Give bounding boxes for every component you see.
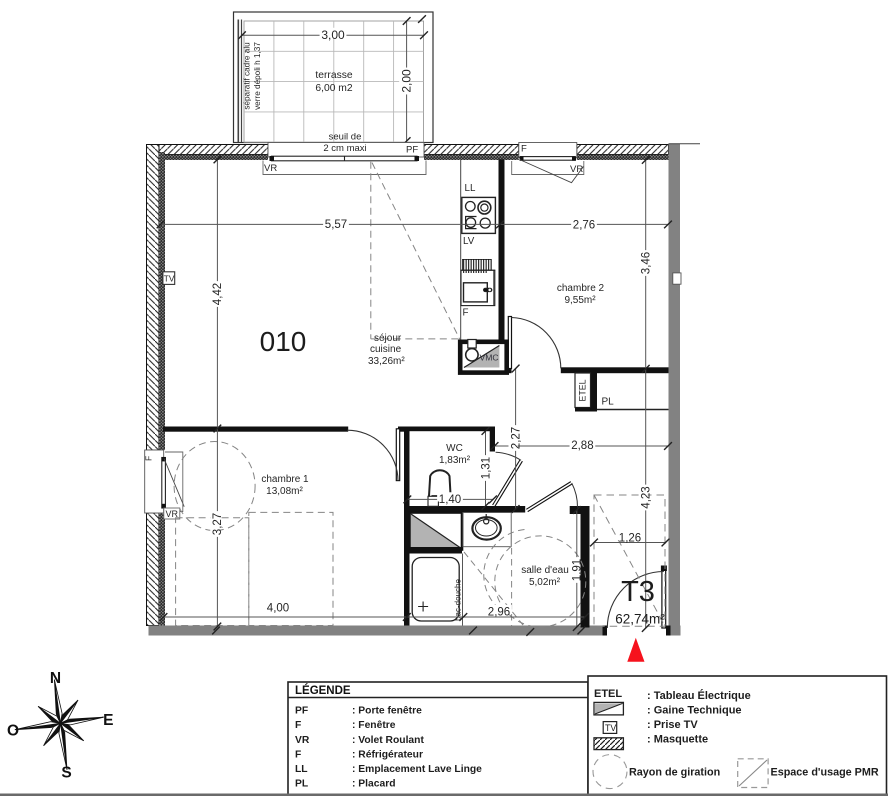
svg-text:3,46: 3,46 bbox=[640, 252, 652, 274]
svg-text:F: F bbox=[295, 749, 301, 760]
svg-text:chambre 1: chambre 1 bbox=[261, 474, 309, 485]
svg-text:seuil de: seuil de bbox=[329, 132, 362, 143]
svg-text:1,26: 1,26 bbox=[619, 533, 641, 545]
svg-text:: Gaine Technique: : Gaine Technique bbox=[647, 705, 742, 717]
svg-text:3,00: 3,00 bbox=[321, 28, 345, 42]
svg-text:2,88: 2,88 bbox=[571, 440, 593, 452]
svg-text:1,40: 1,40 bbox=[439, 494, 461, 506]
svg-text:: Fenêtre: : Fenêtre bbox=[352, 720, 396, 731]
svg-text:1,83m²: 1,83m² bbox=[439, 455, 471, 466]
svg-text:cuisine: cuisine bbox=[370, 344, 402, 355]
svg-text:: Prise TV: : Prise TV bbox=[647, 719, 698, 731]
svg-text:: Réfrigérateur: : Réfrigérateur bbox=[352, 749, 423, 760]
svg-text:1,31: 1,31 bbox=[481, 457, 493, 479]
svg-text:ETEL: ETEL bbox=[578, 379, 588, 401]
svg-text:3,27: 3,27 bbox=[212, 513, 224, 535]
svg-text:LÉGENDE: LÉGENDE bbox=[295, 684, 351, 697]
svg-text:F: F bbox=[295, 720, 301, 731]
svg-text:010: 010 bbox=[260, 326, 307, 357]
svg-text:PL: PL bbox=[295, 779, 308, 790]
svg-text:2 cm maxi: 2 cm maxi bbox=[323, 143, 366, 154]
svg-text:T3: T3 bbox=[621, 576, 655, 608]
svg-text:F: F bbox=[144, 456, 154, 461]
svg-text:TV: TV bbox=[164, 274, 175, 284]
svg-text:62,74m²: 62,74m² bbox=[615, 612, 665, 627]
svg-text:2,96: 2,96 bbox=[488, 607, 510, 619]
svg-text:PL: PL bbox=[602, 397, 615, 408]
svg-text:ETEL: ETEL bbox=[594, 688, 622, 700]
svg-text:VMC: VMC bbox=[480, 353, 499, 363]
svg-text:Rayon de giration: Rayon de giration bbox=[629, 767, 720, 779]
svg-text:TV: TV bbox=[605, 723, 616, 733]
svg-text:chambre 2: chambre 2 bbox=[557, 283, 605, 294]
svg-text:Espace d'usage PMR: Espace d'usage PMR bbox=[771, 767, 879, 779]
svg-text:O: O bbox=[7, 723, 19, 740]
svg-text:5,02m²: 5,02m² bbox=[529, 577, 561, 588]
svg-text:N: N bbox=[50, 670, 61, 687]
svg-text:salle d'eau: salle d'eau bbox=[521, 565, 569, 576]
svg-text:4,23: 4,23 bbox=[640, 486, 652, 508]
svg-text:LV: LV bbox=[463, 236, 475, 247]
svg-text:2,27: 2,27 bbox=[510, 427, 522, 449]
svg-text:E: E bbox=[103, 712, 113, 729]
svg-text:1,91: 1,91 bbox=[571, 559, 583, 581]
svg-text:: Emplacement Lave Linge: : Emplacement Lave Linge bbox=[352, 764, 482, 775]
svg-text:9,55m²: 9,55m² bbox=[564, 295, 596, 306]
svg-text:6,00 m2: 6,00 m2 bbox=[315, 83, 352, 94]
svg-text:4,42: 4,42 bbox=[212, 283, 224, 305]
svg-text:F: F bbox=[521, 144, 527, 155]
svg-text:13,08m²: 13,08m² bbox=[266, 486, 303, 497]
svg-text:PF: PF bbox=[295, 706, 308, 717]
svg-text:LL: LL bbox=[295, 764, 308, 775]
svg-text:terrasse: terrasse bbox=[315, 70, 352, 81]
svg-text:PF: PF bbox=[406, 145, 418, 156]
svg-text:: Masquette: : Masquette bbox=[647, 734, 708, 746]
svg-text:: Placard: : Placard bbox=[352, 779, 396, 790]
svg-text:S: S bbox=[61, 765, 71, 782]
svg-text:LL: LL bbox=[465, 183, 476, 194]
svg-text:F: F bbox=[463, 308, 469, 319]
svg-text:: Porte fenêtre: : Porte fenêtre bbox=[352, 706, 422, 717]
svg-text:bac-douche: bac-douche bbox=[454, 579, 463, 621]
svg-text:VR: VR bbox=[295, 735, 310, 746]
svg-text:WC: WC bbox=[446, 443, 463, 454]
svg-text:séjour: séjour bbox=[374, 333, 402, 344]
svg-text:verre dépoli h 1,37: verre dépoli h 1,37 bbox=[253, 42, 262, 110]
svg-text:: Tableau Électrique: : Tableau Électrique bbox=[647, 689, 751, 702]
svg-text:2,76: 2,76 bbox=[573, 220, 595, 232]
svg-text:5,57: 5,57 bbox=[325, 219, 347, 231]
svg-text:33,26m²: 33,26m² bbox=[368, 356, 405, 367]
svg-text:: Volet Roulant: : Volet Roulant bbox=[352, 735, 424, 746]
svg-text:séparatif cadre alu: séparatif cadre alu bbox=[243, 42, 252, 110]
svg-text:4,00: 4,00 bbox=[267, 603, 289, 615]
svg-text:2,00: 2,00 bbox=[399, 69, 413, 93]
svg-text:VR: VR bbox=[264, 163, 277, 174]
